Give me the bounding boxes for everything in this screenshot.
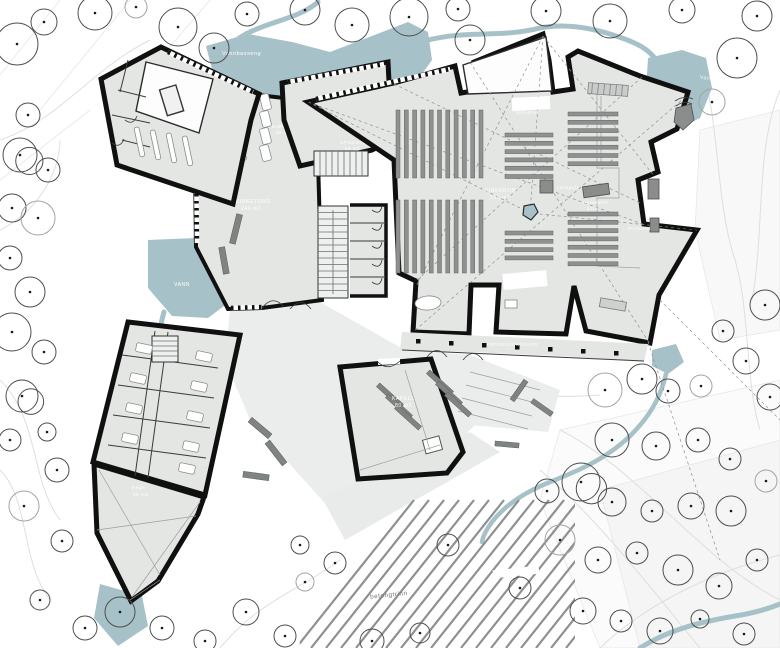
pew-row	[462, 110, 466, 178]
tree-center-dot	[745, 360, 748, 363]
tree-center-dot	[408, 16, 411, 19]
tree-center-dot	[611, 439, 614, 442]
tree-center-dot	[457, 8, 460, 11]
label-alter: Alter	[662, 188, 674, 193]
svg-text:34 m2: 34 m2	[504, 67, 520, 72]
tree-center-dot	[21, 395, 24, 398]
pew-row	[505, 256, 553, 260]
pew-row	[505, 166, 553, 170]
tree-center-dot	[469, 39, 472, 42]
tree-center-dot	[284, 635, 287, 638]
svg-text:56 m2: 56 m2	[345, 146, 360, 151]
pew-row	[396, 110, 400, 178]
site-plan: betongtrinn Hage 36 m2 KAPELL 80 m2	[0, 0, 780, 648]
pew-row	[454, 110, 458, 178]
tree-center-dot	[351, 24, 354, 27]
tree-center-dot	[620, 620, 623, 623]
tree-center-dot	[519, 587, 522, 590]
tree-center-dot	[9, 257, 12, 260]
tree-center-dot	[43, 21, 46, 24]
tree-center-dot	[667, 390, 670, 393]
pew-row	[505, 231, 553, 235]
tree-icon	[0, 313, 31, 351]
tree-center-dot	[37, 217, 40, 220]
column	[449, 341, 454, 346]
tree-center-dot	[204, 640, 207, 643]
pew-row	[429, 110, 433, 178]
pew-row	[471, 110, 475, 178]
pew-row	[568, 254, 618, 258]
tree-icon	[531, 0, 561, 26]
pew-row	[568, 129, 618, 133]
tree-icon	[446, 0, 470, 21]
svg-text:80 m2: 80 m2	[395, 403, 412, 409]
tree-center-dot	[736, 57, 739, 60]
tree-center-dot	[729, 458, 732, 461]
lesepult	[540, 180, 553, 193]
pew-row	[568, 137, 618, 141]
pew-row	[438, 200, 442, 273]
tree-center-dot	[769, 396, 772, 399]
pew-row	[505, 175, 553, 179]
pew-row	[505, 141, 553, 145]
pew-row	[454, 200, 458, 273]
label-hovedalter: Hovedalter	[583, 200, 609, 205]
tree-center-dot	[681, 9, 684, 12]
tree-center-dot	[11, 207, 14, 210]
label-vann-left: VANN	[174, 282, 190, 288]
pew-row	[429, 200, 433, 273]
pew-row	[462, 200, 466, 273]
tree-center-dot	[61, 540, 64, 543]
label-betongtrinn: betongtrinn	[370, 590, 408, 601]
pew-row	[505, 158, 553, 162]
pew-row	[505, 133, 553, 137]
tree-center-dot	[419, 632, 422, 635]
tree-center-dot	[722, 330, 725, 333]
tree-center-dot	[718, 585, 721, 588]
tree-center-dot	[699, 618, 702, 621]
pond-small-east	[652, 344, 684, 374]
tree-icon	[194, 630, 216, 648]
pew-row	[505, 150, 553, 154]
tree-center-dot	[47, 169, 50, 172]
tree-center-dot	[611, 501, 614, 504]
tree-center-dot	[371, 640, 374, 643]
tree-center-dot	[743, 633, 746, 636]
tree-center-dot	[730, 510, 733, 513]
label-hage: Hage	[132, 485, 145, 490]
tree-center-dot	[246, 13, 249, 16]
tree-center-dot	[39, 599, 42, 602]
pew-row	[446, 110, 450, 178]
pew-row	[446, 200, 450, 273]
tree-center-dot	[711, 101, 714, 104]
pew-row	[421, 110, 425, 178]
column	[548, 347, 553, 352]
tree-center-dot	[659, 630, 662, 633]
tree-center-dot	[304, 581, 307, 584]
tree-center-dot	[299, 544, 302, 547]
step-line	[371, 500, 489, 648]
column	[482, 343, 487, 348]
tree-center-dot	[559, 539, 562, 542]
pew-row	[568, 220, 618, 224]
tree-center-dot	[119, 611, 122, 614]
tree-center-dot	[161, 627, 164, 630]
tree-center-dot	[690, 505, 693, 508]
prekestol	[650, 218, 659, 232]
tree-center-dot	[46, 431, 49, 434]
klosterrom	[463, 37, 552, 94]
svg-text:240 m2: 240 m2	[241, 206, 261, 212]
svg-text:36 m2: 36 m2	[133, 492, 149, 497]
tree-center-dot	[16, 43, 19, 46]
organ	[588, 83, 629, 97]
label-kirketorg: KIRKETORG	[236, 199, 271, 205]
pew-row	[404, 110, 408, 178]
tree-center-dot	[447, 544, 450, 547]
pew-row	[421, 200, 425, 273]
tree-icon	[669, 0, 695, 23]
pew-row	[568, 120, 618, 124]
pew-row	[404, 200, 408, 273]
label-prosesjonsgang: PROSESJONSGANG	[487, 342, 538, 347]
tree-center-dot	[655, 445, 658, 448]
label-klosterrom: KLOSTERROM	[495, 60, 533, 65]
pew-row	[479, 200, 483, 273]
column	[581, 349, 586, 354]
bench	[495, 441, 519, 448]
column	[416, 339, 421, 344]
pew-row	[568, 237, 618, 241]
tree-center-dot	[756, 559, 759, 562]
site-plan-svg: betongtrinn Hage 36 m2 KAPELL 80 m2	[0, 0, 780, 648]
label-lesepult: Lesepult	[557, 185, 579, 190]
tree-center-dot	[700, 385, 703, 388]
stair-cores	[314, 151, 386, 298]
tree-center-dot	[245, 611, 248, 614]
tree-center-dot	[23, 505, 26, 508]
pew-row	[479, 110, 483, 178]
tree-center-dot	[304, 9, 307, 12]
bench	[243, 471, 270, 481]
sidealter-top	[512, 96, 551, 111]
tree-center-dot	[604, 389, 607, 392]
tree-center-dot	[11, 331, 14, 334]
tree-center-dot	[334, 562, 337, 565]
tree-center-dot	[213, 47, 216, 50]
svg-text:550 m2: 550 m2	[490, 195, 510, 201]
svg-text:bord: bord	[587, 206, 598, 211]
tree-center-dot	[94, 12, 97, 15]
pew-row	[568, 262, 618, 266]
tree-center-dot	[609, 20, 612, 23]
tree-center-dot	[641, 378, 644, 381]
tree-center-dot	[636, 552, 639, 555]
tree-icon	[78, 0, 112, 30]
pew-row	[438, 110, 442, 178]
tree-center-dot	[764, 304, 767, 307]
tree-center-dot	[19, 154, 22, 157]
tree-center-dot	[677, 569, 680, 572]
tree-center-dot	[84, 627, 87, 630]
tree-center-dot	[546, 490, 549, 493]
pew-row	[413, 200, 417, 273]
tree-center-dot	[651, 510, 654, 513]
tree-icon	[0, 23, 38, 65]
pew-row	[413, 110, 417, 178]
label-kirkerom: KIRKEROM	[485, 188, 516, 194]
pew-row	[568, 162, 618, 166]
tree-center-dot	[43, 351, 46, 354]
tree-center-dot	[765, 480, 768, 483]
step-line	[386, 500, 504, 648]
tree-center-dot	[545, 10, 548, 13]
label-prekestol: Prekestol	[628, 226, 651, 231]
tree-center-dot	[27, 114, 30, 117]
bay-table	[505, 300, 517, 308]
tree-center-dot	[29, 291, 32, 294]
tree-center-dot	[56, 469, 59, 472]
alter	[648, 179, 659, 199]
label-sidealter-bottom: Sidealter	[514, 278, 537, 283]
pew-row	[568, 245, 618, 249]
pew-row	[505, 248, 553, 252]
pew-row	[568, 154, 618, 158]
tree-center-dot	[582, 610, 585, 613]
pew-row	[568, 145, 618, 149]
tree-center-dot	[697, 439, 700, 442]
cells-wing	[93, 322, 240, 495]
label-kapell: KAPELL	[392, 396, 415, 402]
column	[614, 351, 619, 356]
pew-row	[471, 200, 475, 273]
tree-center-dot	[580, 481, 583, 484]
pew-row	[505, 239, 553, 243]
tree-icon	[16, 147, 43, 174]
pew-row	[568, 112, 618, 116]
pew-row	[396, 200, 400, 273]
tree-center-dot	[597, 559, 600, 562]
tree-center-dot	[756, 15, 759, 18]
pew-row	[568, 229, 618, 233]
tree-center-dot	[9, 439, 12, 442]
label-sidealter-top: Sidealter	[516, 110, 539, 115]
tree-icon	[18, 389, 44, 415]
pew-row	[568, 212, 618, 216]
tree-center-dot	[177, 26, 180, 29]
tree-center-dot	[135, 6, 138, 9]
